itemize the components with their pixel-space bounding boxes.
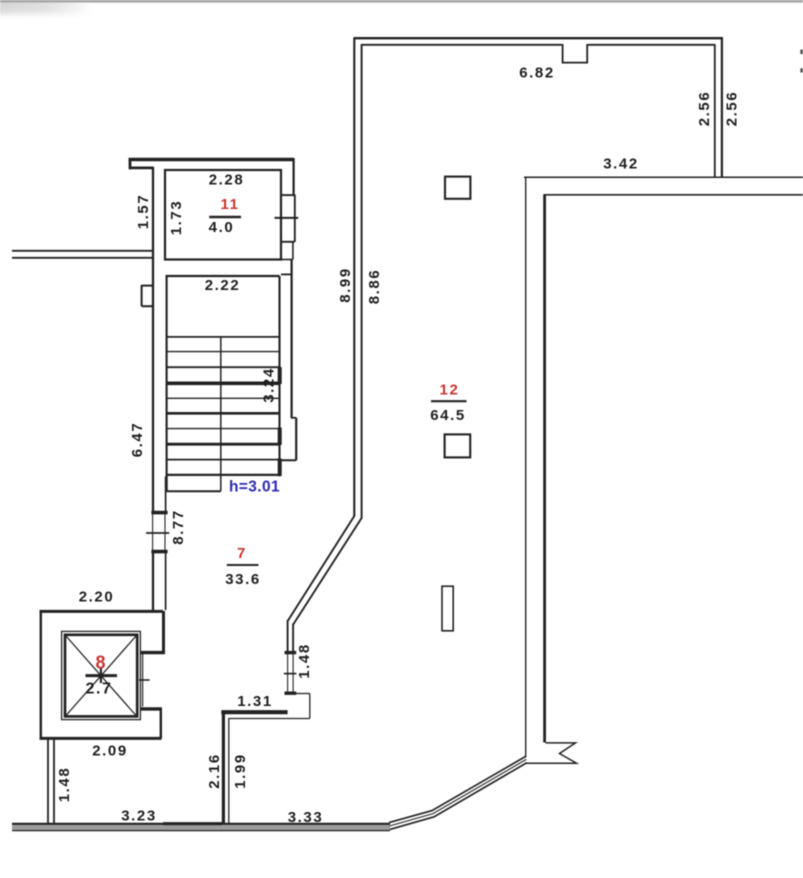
svg-text:3.24: 3.24 bbox=[261, 367, 278, 403]
svg-text:1.31: 1.31 bbox=[237, 693, 273, 710]
svg-text:33.6: 33.6 bbox=[225, 571, 261, 588]
svg-text:64.5: 64.5 bbox=[430, 407, 466, 424]
svg-text:1.48: 1.48 bbox=[296, 643, 313, 679]
svg-text:8.77: 8.77 bbox=[170, 509, 187, 545]
svg-text:4.0: 4.0 bbox=[209, 219, 235, 236]
svg-text:2.09: 2.09 bbox=[92, 743, 128, 760]
svg-text:8: 8 bbox=[95, 653, 105, 673]
svg-text:1.99: 1.99 bbox=[232, 753, 249, 789]
svg-text:h=3.01: h=3.01 bbox=[229, 479, 280, 496]
svg-text:1.57: 1.57 bbox=[135, 194, 152, 230]
svg-text:8.99: 8.99 bbox=[337, 267, 354, 303]
svg-text:2.56: 2.56 bbox=[696, 91, 713, 127]
svg-text:3.23: 3.23 bbox=[121, 808, 157, 825]
svg-text:2.20: 2.20 bbox=[79, 589, 115, 606]
svg-text:1.73: 1.73 bbox=[168, 200, 185, 236]
svg-text:1.48: 1.48 bbox=[56, 767, 73, 803]
svg-text:6.47: 6.47 bbox=[129, 422, 146, 458]
svg-text:3.33: 3.33 bbox=[288, 809, 324, 826]
svg-text:6.82: 6.82 bbox=[519, 65, 555, 82]
svg-text:2.7: 2.7 bbox=[85, 681, 112, 698]
svg-text:2.56: 2.56 bbox=[724, 91, 741, 127]
svg-text:12: 12 bbox=[440, 382, 460, 399]
svg-text:11: 11 bbox=[220, 196, 239, 213]
svg-text:8.86: 8.86 bbox=[366, 269, 383, 305]
svg-text:7: 7 bbox=[237, 545, 247, 562]
svg-text:3.42: 3.42 bbox=[603, 156, 639, 173]
svg-text:2.22: 2.22 bbox=[205, 277, 241, 294]
svg-text:2.16: 2.16 bbox=[206, 753, 223, 789]
svg-text:2.28: 2.28 bbox=[209, 171, 245, 188]
